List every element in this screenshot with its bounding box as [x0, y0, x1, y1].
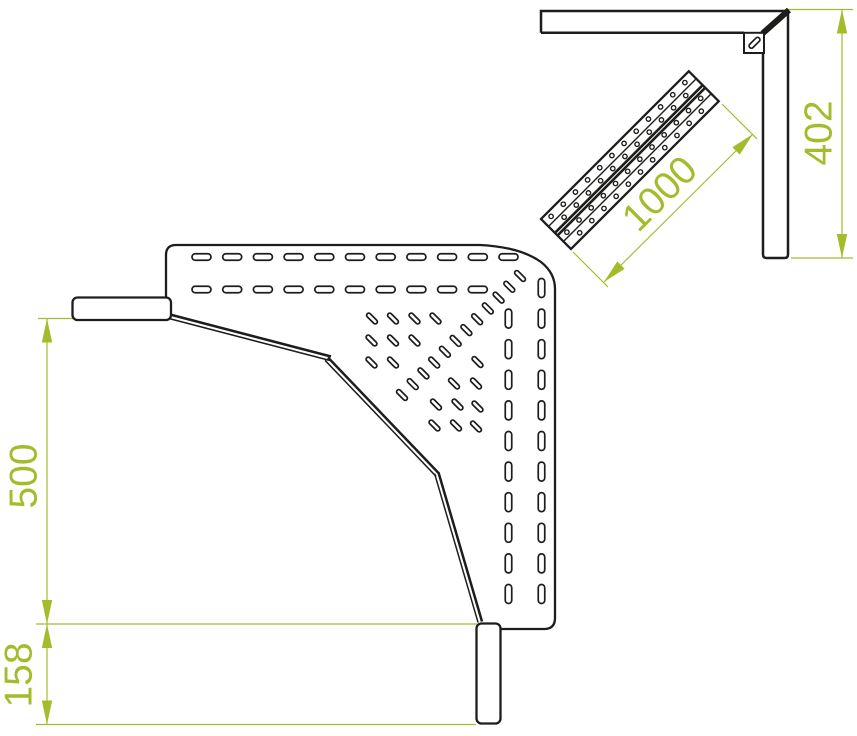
plate-slot [538, 585, 545, 604]
diagonal-slots [365, 270, 526, 433]
plate-slot [538, 370, 545, 389]
plate-slot [505, 462, 512, 481]
plate-slot [428, 356, 441, 369]
dim-158-label: 158 [0, 642, 41, 707]
profile-miter-joint [763, 10, 790, 34]
plate-slot [223, 286, 242, 293]
profile-vertical-bar [763, 11, 788, 258]
plate-slot [430, 398, 443, 411]
plate-slot [439, 345, 452, 358]
plate-slot [253, 254, 272, 261]
plate-slot [387, 334, 400, 347]
plate-slot [505, 554, 512, 573]
plate-slot [538, 401, 545, 420]
plate-slot [253, 286, 272, 293]
plate-slot [470, 377, 483, 390]
fold-line-3-outer [439, 473, 483, 622]
drawing-canvas: 500 158 402 1000 [0, 0, 857, 736]
plate-slot [396, 389, 409, 402]
plate-slot [505, 523, 512, 542]
left-flange [73, 298, 172, 321]
plate-slot [499, 254, 518, 261]
plate-slot [438, 254, 457, 261]
dimension-arrowhead [837, 234, 847, 258]
plate-slot [449, 335, 462, 348]
plate-slot [468, 254, 487, 261]
fold-line-1-inner [167, 318, 330, 361]
fold-line-2-inner [325, 360, 436, 476]
plate-slot [406, 378, 419, 391]
plate-slot [408, 334, 421, 347]
plate-slot [505, 340, 512, 359]
plate-slot [365, 334, 378, 347]
plate-slot [407, 286, 426, 293]
plate-slot [538, 462, 545, 481]
plate-slot [376, 286, 395, 293]
dimension-arrowhead [42, 624, 52, 648]
plate-slot [450, 419, 463, 432]
plate-slot [315, 254, 334, 261]
plate-slot [284, 254, 303, 261]
dimension-arrowhead [42, 701, 52, 725]
drawing-page: 500 158 402 1000 [0, 0, 857, 736]
plate-slot [387, 312, 400, 325]
plate-slot [428, 419, 441, 432]
plate-slot [505, 309, 512, 328]
plate-slot [284, 286, 303, 293]
plate-slot [538, 554, 545, 573]
dim-500-label: 500 [3, 443, 46, 508]
plate-slot [505, 585, 512, 604]
plate-slot [505, 493, 512, 512]
plate-slot [470, 420, 483, 433]
plate-slot [471, 356, 484, 369]
dimension-arrows [42, 10, 847, 725]
plate-slot [223, 254, 242, 261]
dimension-arrowhead [42, 600, 52, 624]
plate-slot [503, 281, 516, 294]
plate-slot [376, 254, 395, 261]
plate-slot [505, 432, 512, 451]
plate-slot [408, 312, 421, 325]
plate-slot [468, 286, 487, 293]
plate-slot [315, 286, 334, 293]
plate-slot [538, 309, 545, 328]
plate-slot [346, 254, 365, 261]
vertical-slots [505, 279, 545, 604]
plate-slot [492, 291, 505, 304]
plate-slot [471, 400, 484, 413]
plate-slot [448, 377, 461, 390]
dimension-lines [47, 10, 842, 725]
plate-slot [505, 401, 512, 420]
plate-slot [505, 370, 512, 389]
plate-slot [429, 312, 442, 325]
plate-slot [471, 313, 484, 326]
dimension-arrowhead [42, 319, 52, 343]
plate-slot [538, 493, 545, 512]
tray-corner-plate-outline [166, 245, 555, 629]
plate-slot [538, 340, 545, 359]
extension-lines [36, 10, 853, 725]
plate-slot [417, 367, 430, 380]
profile-horizontal-bar [541, 11, 788, 33]
plate-slot [346, 286, 365, 293]
plate-slot [538, 279, 545, 298]
plate-slot [192, 254, 211, 261]
fold-line-1-outer [168, 314, 331, 357]
ext-line-1000-far [722, 104, 757, 139]
plate-slot [538, 523, 545, 542]
horizontal-slots [192, 254, 518, 293]
ext-line-1000-near [573, 252, 608, 287]
plate-slot [482, 302, 495, 315]
plate-slot [365, 356, 378, 369]
dim-402-label: 402 [798, 100, 841, 165]
plate-slot [538, 432, 545, 451]
plate-slot [407, 254, 426, 261]
plate-slot [451, 398, 464, 411]
plate-slot [366, 312, 379, 325]
bottom-flange [477, 624, 501, 724]
plate-slot [387, 356, 400, 369]
plate-slot [514, 270, 527, 283]
plate-slot [438, 286, 457, 293]
fold-line-3-inner [435, 474, 479, 623]
plate-slot [460, 324, 473, 337]
dimension-arrowhead [837, 10, 847, 34]
plate-slot [192, 286, 211, 293]
